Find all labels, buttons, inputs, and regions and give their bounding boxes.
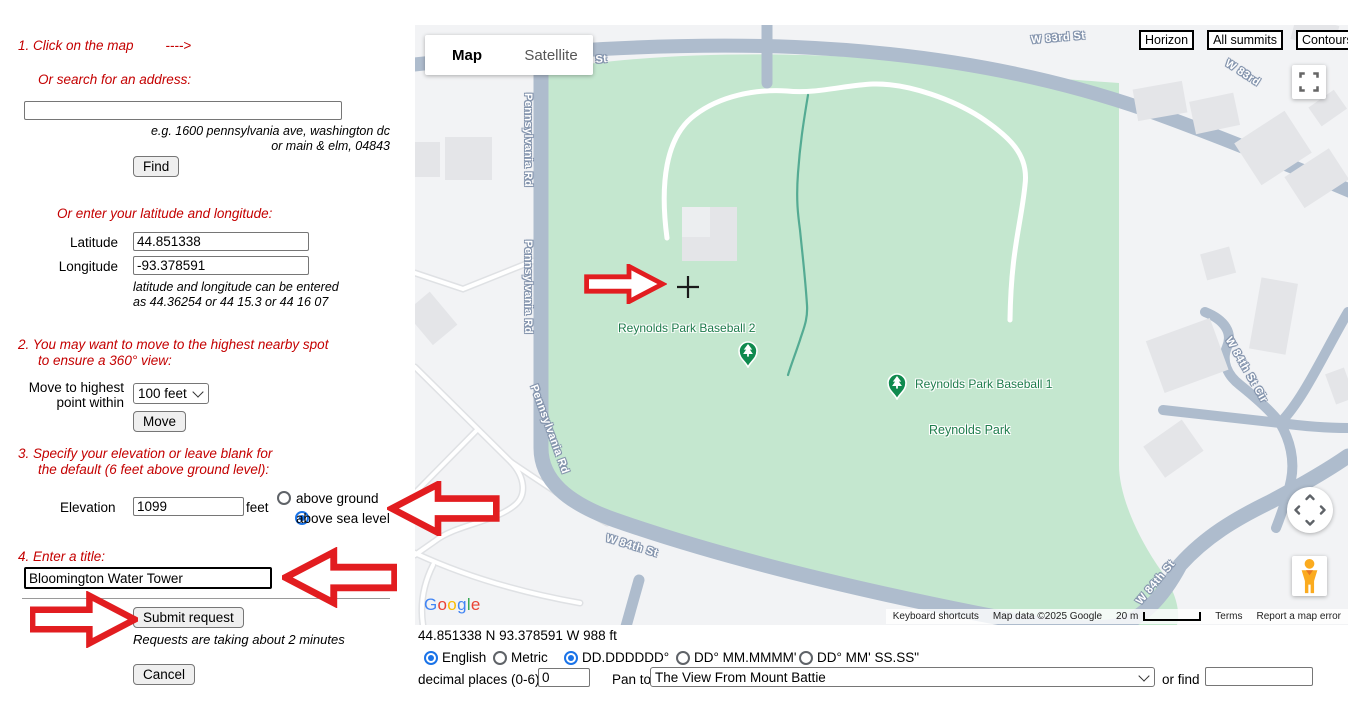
chevron-down-icon — [192, 386, 203, 397]
step1-instruction: 1. Click on the map ----> — [18, 38, 191, 53]
tab-map[interactable]: Map — [425, 47, 509, 64]
poi-label-reynolds-park: Reynolds Park — [929, 423, 1010, 437]
pan-control[interactable] — [1287, 487, 1333, 533]
elevation-label: Elevation — [60, 500, 116, 515]
scale-text: 20 m — [1116, 611, 1138, 622]
metric-radio[interactable] — [493, 651, 507, 665]
longitude-field[interactable] — [133, 256, 309, 275]
park-pin-baseball2[interactable] — [735, 338, 761, 368]
park-area — [548, 54, 1178, 625]
or-find-label: or find — [1162, 672, 1200, 687]
move-distance-value: 100 feet — [138, 386, 187, 401]
decimal-places-field[interactable] — [538, 668, 590, 687]
latlng-hint: latitude and longitude can be entered as… — [133, 280, 339, 310]
poi-label-baseball2: Reynolds Park Baseball 2 — [618, 321, 755, 335]
above-sea-level-label[interactable]: above sea level — [296, 511, 390, 526]
english-label: English — [442, 650, 486, 665]
map-data-text: Map data ©2025 Google — [986, 609, 1109, 624]
pointer-arrow-title — [282, 547, 397, 608]
format-dd-option[interactable]: DD.DDDDDD° — [564, 650, 669, 665]
pan-to-value: The View From Mount Battie — [655, 670, 826, 685]
google-logo: Google — [424, 595, 481, 615]
coordinates-readout: 44.851338 N 93.378591 W 988 ft — [418, 628, 617, 643]
pan-to-select[interactable]: The View From Mount Battie — [650, 667, 1155, 687]
latitude-field[interactable] — [133, 232, 309, 251]
step4-label: 4. Enter a title: — [18, 549, 105, 564]
format-dms-option[interactable]: DD° MM' SS.SS" — [799, 650, 919, 665]
pointer-arrow-map — [583, 264, 667, 304]
pointer-arrow-submit — [30, 591, 138, 648]
road-branch-bottom — [625, 580, 639, 625]
latitude-label: Latitude — [40, 235, 118, 250]
pan-arrows-icon — [1287, 487, 1333, 533]
fullscreen-icon — [1292, 65, 1326, 99]
move-highest-line2: point within — [16, 395, 124, 410]
submit-request-button[interactable]: Submit request — [133, 607, 244, 628]
report-map-error-link[interactable]: Report a map error — [1250, 609, 1348, 624]
cancel-button[interactable]: Cancel — [133, 664, 195, 685]
street-label-pennsylvania-2: Pennsylvania Rd — [522, 240, 534, 334]
or-find-field[interactable] — [1205, 667, 1313, 686]
step3-line2: the default (6 feet above ground level): — [38, 462, 269, 477]
address-hint-line2: or main & elm, 04843 — [50, 139, 390, 154]
unit-metric-option[interactable]: Metric — [493, 650, 548, 665]
street-view-pegman-button[interactable] — [1292, 556, 1327, 596]
english-radio[interactable] — [424, 651, 438, 665]
title-field[interactable] — [24, 567, 272, 589]
crosshair-icon — [676, 275, 700, 299]
chevron-down-icon — [1138, 670, 1149, 681]
horizon-button[interactable]: Horizon — [1139, 30, 1194, 50]
map-canvas[interactable]: W 83rd St W 83rd St W 83rd Pennsylvania … — [415, 25, 1348, 625]
move-highest-line1: Move to highest — [16, 380, 124, 395]
feet-label: feet — [246, 500, 269, 515]
map-basemap — [415, 25, 1348, 625]
street-label-pennsylvania-1: Pennsylvania Rd — [522, 93, 534, 187]
pan-to-label: Pan to — [612, 672, 651, 687]
dm-label: DD° MM.MMMM' — [694, 650, 796, 665]
above-ground-label[interactable]: above ground — [296, 491, 379, 506]
decimal-places-label: decimal places (0-6) — [418, 672, 540, 687]
step2-line2: to ensure a 360° view: — [38, 353, 172, 368]
move-highest-label: Move to highest point within — [16, 380, 124, 410]
scale-bar — [1143, 612, 1201, 621]
overlay-button-row: Horizon All summits Contours — [1139, 30, 1348, 50]
scale-control: 20 m — [1109, 609, 1208, 624]
latlng-label: Or enter your latitude and longitude: — [57, 206, 272, 221]
step1-arrow-text: ----> — [165, 38, 191, 53]
dm-radio[interactable] — [676, 651, 690, 665]
elevation-field[interactable] — [133, 497, 244, 516]
poi-label-baseball1: Reynolds Park Baseball 1 — [915, 377, 1052, 391]
tab-satellite[interactable]: Satellite — [509, 47, 593, 64]
find-button[interactable]: Find — [133, 156, 179, 177]
unit-english-option[interactable]: English — [424, 650, 486, 665]
dms-radio[interactable] — [799, 651, 813, 665]
metric-label: Metric — [511, 650, 548, 665]
step1-text: 1. Click on the map — [18, 38, 134, 53]
pointer-arrow-elevation — [387, 481, 500, 536]
address-hint: e.g. 1600 pennsylvania ave, washington d… — [50, 124, 390, 154]
map-attribution: Keyboard shortcuts Map data ©2025 Google… — [886, 609, 1348, 624]
search-address-label: Or search for an address: — [38, 72, 191, 87]
above-ground-radio[interactable] — [277, 491, 291, 505]
map-type-control: Map Satellite — [425, 35, 593, 75]
fullscreen-button[interactable] — [1292, 65, 1326, 99]
address-hint-line1: e.g. 1600 pennsylvania ave, washington d… — [50, 124, 390, 139]
submit-note: Requests are taking about 2 minutes — [133, 632, 345, 647]
dd-radio[interactable] — [564, 651, 578, 665]
contours-button[interactable]: Contours — [1296, 30, 1348, 50]
terms-link[interactable]: Terms — [1208, 609, 1249, 624]
step2-line1: 2. You may want to move to the highest n… — [18, 337, 328, 352]
step3-line1: 3. Specify your elevation or leave blank… — [18, 446, 272, 461]
address-input[interactable] — [24, 101, 342, 120]
move-button[interactable]: Move — [133, 411, 186, 432]
park-pin-baseball1[interactable] — [884, 370, 910, 400]
pegman-icon — [1292, 556, 1327, 596]
dms-label: DD° MM' SS.SS" — [817, 650, 919, 665]
keyboard-shortcuts-link[interactable]: Keyboard shortcuts — [886, 609, 986, 624]
all-summits-button[interactable]: All summits — [1207, 30, 1283, 50]
longitude-label: Longitude — [40, 259, 118, 274]
format-dm-option[interactable]: DD° MM.MMMM' — [676, 650, 796, 665]
dd-label: DD.DDDDDD° — [582, 650, 669, 665]
latlng-hint-line2: as 44.36254 or 44 15.3 or 44 16 07 — [133, 295, 339, 310]
latlng-hint-line1: latitude and longitude can be entered — [133, 280, 339, 295]
move-distance-select[interactable]: 100 feet — [133, 383, 209, 404]
